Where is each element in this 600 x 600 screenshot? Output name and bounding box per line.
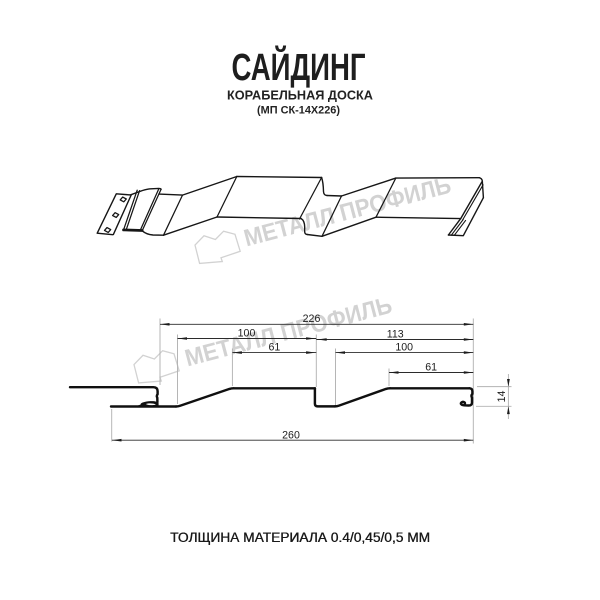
svg-text:КОРАБЕЛЬНАЯ ДОСКА: КОРАБЕЛЬНАЯ ДОСКА (227, 88, 374, 103)
svg-text:113: 113 (387, 329, 404, 341)
svg-text:61: 61 (269, 342, 281, 354)
svg-text:ТОЛЩИНА МАТЕРИАЛА 0.4/0,45/0,5: ТОЛЩИНА МАТЕРИАЛА 0.4/0,45/0,5 ММ (170, 529, 430, 545)
svg-text:100: 100 (238, 328, 256, 340)
svg-text:260: 260 (282, 429, 300, 441)
svg-text:226: 226 (303, 313, 321, 325)
svg-text:14: 14 (496, 391, 508, 403)
svg-text:100: 100 (395, 342, 413, 354)
svg-text:61: 61 (425, 362, 437, 374)
svg-text:(МП СК-14Х226): (МП СК-14Х226) (257, 105, 340, 117)
svg-text:САЙДИНГ: САЙДИНГ (232, 44, 366, 89)
